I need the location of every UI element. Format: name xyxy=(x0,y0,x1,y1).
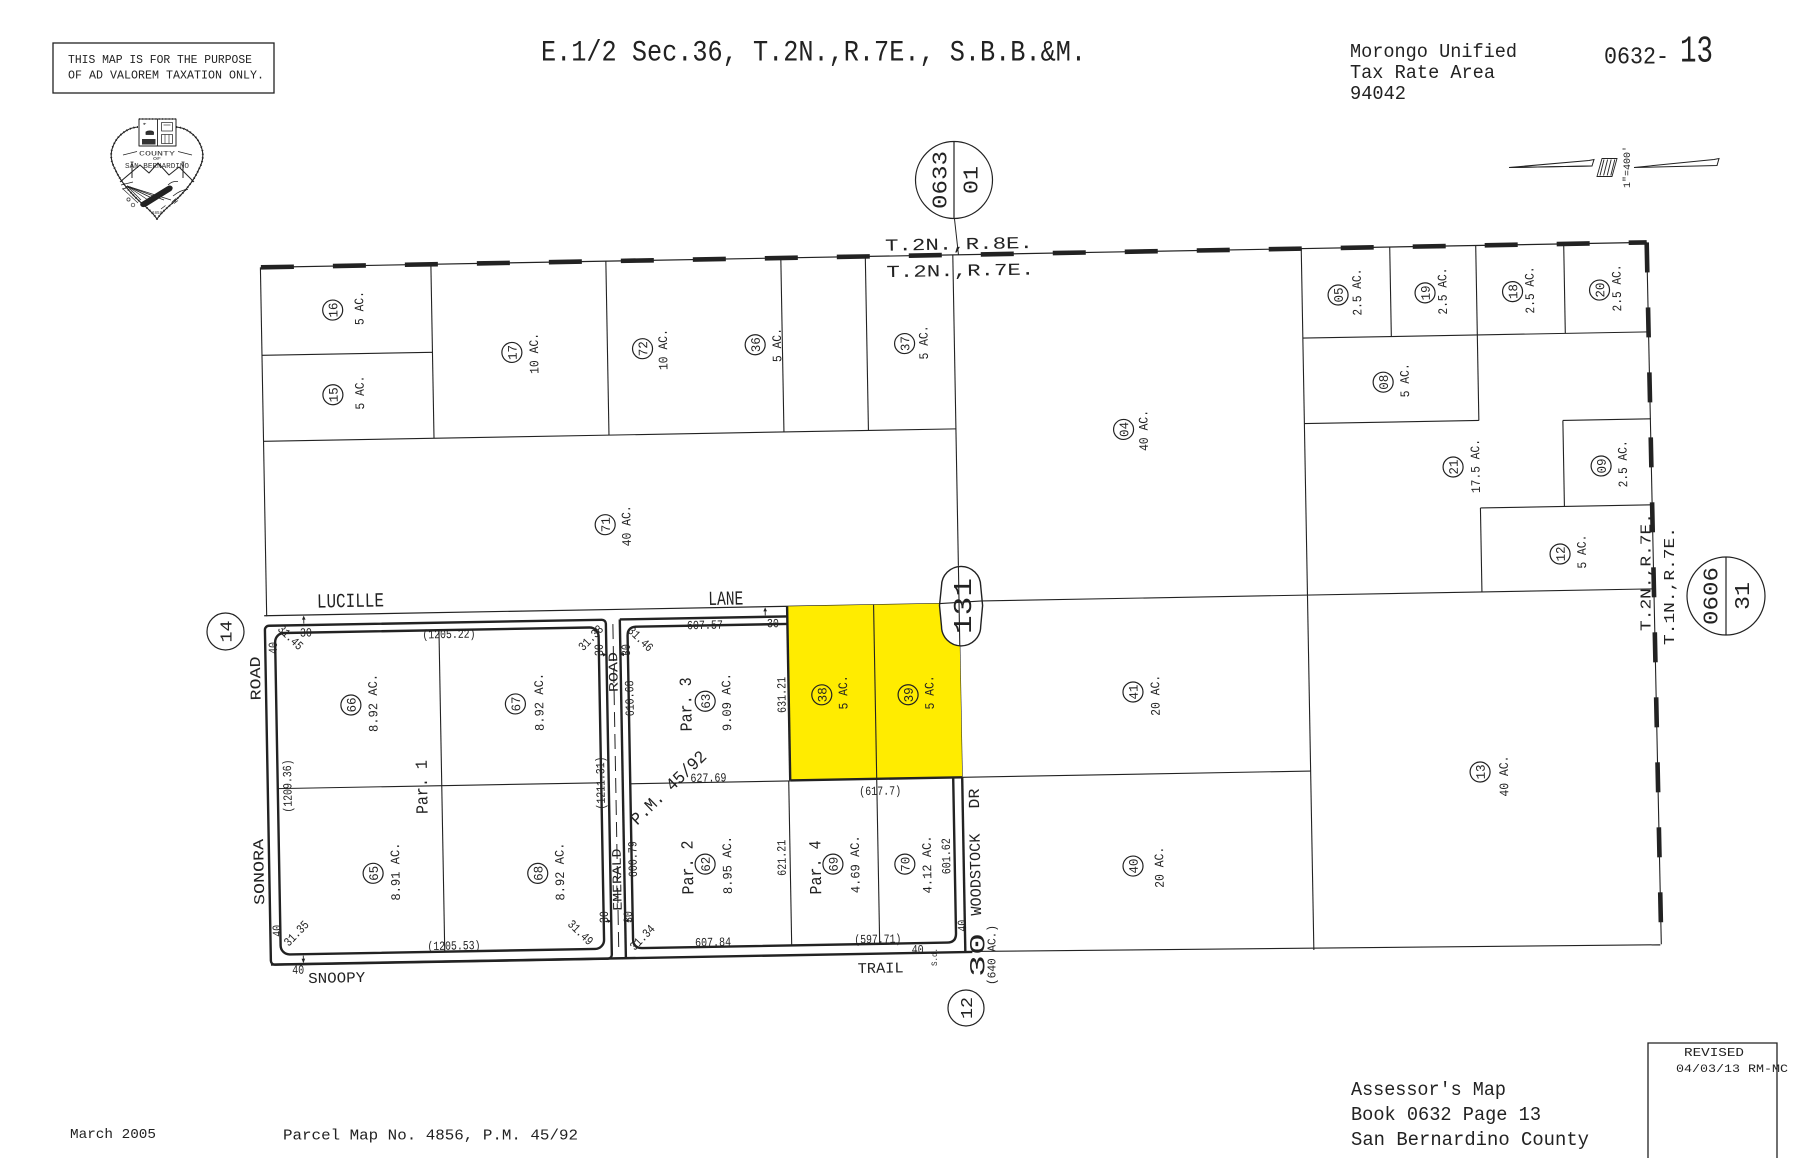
svg-text:30: 30 xyxy=(767,617,779,631)
svg-text:17: 17 xyxy=(505,345,520,360)
svg-text:30: 30 xyxy=(620,644,634,656)
svg-text:(640 AC.): (640 AC.) xyxy=(987,925,1000,985)
svg-text:2.5 AC.: 2.5 AC. xyxy=(1522,266,1538,313)
svg-text:21: 21 xyxy=(1447,459,1462,474)
svg-text:(1211.31): (1211.31) xyxy=(594,756,609,809)
svg-text:LANE: LANE xyxy=(708,588,743,612)
svg-text:40: 40 xyxy=(1127,858,1142,873)
svg-text:S.d.: S.d. xyxy=(930,948,940,966)
svg-text:(1205.53): (1205.53) xyxy=(427,939,480,954)
svg-text:20 AC.: 20 AC. xyxy=(1152,847,1168,888)
svg-text:(1205.22): (1205.22) xyxy=(422,628,475,643)
svg-text:610.68: 610.68 xyxy=(623,680,638,716)
svg-text:15: 15 xyxy=(326,387,341,402)
svg-text:San Bernardino County: San Bernardino County xyxy=(1351,1129,1589,1151)
svg-text:601.62: 601.62 xyxy=(940,838,955,874)
svg-text:T.1N.,R.7E.: T.1N.,R.7E. xyxy=(1662,527,1679,645)
svg-text:13: 13 xyxy=(1680,31,1713,74)
svg-text:607.57: 607.57 xyxy=(687,619,723,634)
svg-text:04: 04 xyxy=(1117,422,1132,437)
svg-text:12: 12 xyxy=(1554,546,1569,561)
svg-text:63: 63 xyxy=(699,694,714,709)
svg-text:0632-: 0632- xyxy=(1604,44,1669,71)
svg-text:600.79: 600.79 xyxy=(626,841,641,877)
svg-text:31: 31 xyxy=(1733,582,1756,610)
svg-text:ROAD: ROAD xyxy=(606,652,622,693)
svg-text:12: 12 xyxy=(959,997,978,1019)
svg-text:40: 40 xyxy=(912,943,924,957)
svg-text:March 2005: March 2005 xyxy=(70,1127,156,1143)
svg-text:13: 13 xyxy=(1474,764,1489,779)
svg-text:01: 01 xyxy=(962,166,985,194)
svg-text:T.2N.,R.7E.: T.2N.,R.7E. xyxy=(886,262,1034,284)
svg-text:5 AC.: 5 AC. xyxy=(352,291,368,325)
svg-text:5 AC.: 5 AC. xyxy=(922,675,938,709)
svg-text:8.95 AC.: 8.95 AC. xyxy=(720,836,736,894)
svg-text:2.5 AC.: 2.5 AC. xyxy=(1350,268,1366,315)
svg-text:18: 18 xyxy=(1506,284,1521,299)
svg-text:5 AC.: 5 AC. xyxy=(770,328,786,362)
svg-text:30: 30 xyxy=(593,644,607,656)
svg-text:9.09 AC.: 9.09 AC. xyxy=(719,673,735,731)
svg-text:8.92 AC.: 8.92 AC. xyxy=(366,674,382,732)
svg-text:Book 0632 Page 13: Book 0632 Page 13 xyxy=(1351,1104,1541,1126)
svg-text:4.12 AC.: 4.12 AC. xyxy=(920,835,936,893)
svg-text:8.91 AC.: 8.91 AC. xyxy=(388,842,404,900)
svg-text:30: 30 xyxy=(598,911,612,923)
svg-text:39: 39 xyxy=(902,687,917,702)
svg-text:94042: 94042 xyxy=(1350,83,1406,105)
svg-text:LUCILLE: LUCILLE xyxy=(317,590,384,614)
svg-text:68: 68 xyxy=(531,866,546,881)
svg-text:EMERALD: EMERALD xyxy=(610,848,626,910)
svg-text:65: 65 xyxy=(367,866,382,881)
svg-text:38: 38 xyxy=(815,687,830,702)
svg-text:20 AC.: 20 AC. xyxy=(1148,675,1164,716)
svg-text:WOODSTOCK: WOODSTOCK xyxy=(967,833,986,916)
svg-text:REVISED: REVISED xyxy=(1684,1047,1744,1060)
svg-text:8.92 AC.: 8.92 AC. xyxy=(552,842,568,900)
svg-text:OF AD VALOREM TAXATION ONLY.: OF AD VALOREM TAXATION ONLY. xyxy=(68,69,264,83)
svg-text:627.69: 627.69 xyxy=(690,771,726,786)
svg-text:70: 70 xyxy=(898,856,913,871)
svg-text:OF: OF xyxy=(153,156,161,162)
svg-text:5 AC.: 5 AC. xyxy=(1398,363,1414,397)
svg-text:Assessor's Map: Assessor's Map xyxy=(1351,1079,1506,1101)
svg-text:0606: 0606 xyxy=(1702,567,1725,625)
svg-text:631.21: 631.21 xyxy=(775,677,790,713)
svg-text:40: 40 xyxy=(271,925,285,937)
svg-text:10 AC.: 10 AC. xyxy=(527,333,543,374)
svg-text:Morongo Unified: Morongo Unified xyxy=(1350,41,1517,63)
svg-text:Par. 1: Par. 1 xyxy=(414,760,434,814)
svg-text:20: 20 xyxy=(1593,282,1608,297)
svg-text:30: 30 xyxy=(622,911,636,923)
svg-text:Par. 2: Par. 2 xyxy=(679,840,699,894)
svg-text:Parcel Map No. 4856, P.M. 45/9: Parcel Map No. 4856, P.M. 45/92 xyxy=(283,1127,578,1144)
svg-text:5 AC.: 5 AC. xyxy=(836,675,852,709)
svg-text:41: 41 xyxy=(1127,684,1142,699)
svg-text:T.2N.,R.8E.: T.2N.,R.8E. xyxy=(885,235,1033,257)
svg-text:5 AC.: 5 AC. xyxy=(1575,534,1591,568)
svg-text:71: 71 xyxy=(599,517,614,532)
svg-text:Tax Rate Area: Tax Rate Area xyxy=(1350,62,1495,84)
svg-text:40: 40 xyxy=(292,964,304,978)
svg-text:40 AC.: 40 AC. xyxy=(1497,755,1513,796)
svg-text:4.69 AC.: 4.69 AC. xyxy=(848,835,864,893)
svg-text:SNOOPY: SNOOPY xyxy=(308,970,365,988)
svg-text:37: 37 xyxy=(898,336,913,351)
svg-text:THIS MAP IS FOR THE PURPOSE: THIS MAP IS FOR THE PURPOSE xyxy=(68,53,252,67)
svg-text:5 AC.: 5 AC. xyxy=(916,325,932,359)
svg-text:2.5 AC.: 2.5 AC. xyxy=(1435,267,1451,314)
svg-text:40 AC.: 40 AC. xyxy=(1136,410,1152,451)
svg-text:10 AC.: 10 AC. xyxy=(656,329,672,370)
svg-text:1853: 1853 xyxy=(152,212,163,216)
svg-text:66: 66 xyxy=(344,697,359,712)
svg-text:2.5 AC.: 2.5 AC. xyxy=(1615,440,1631,487)
svg-text:5 AC.: 5 AC. xyxy=(353,375,369,409)
svg-text:131: 131 xyxy=(949,578,979,634)
svg-text:36: 36 xyxy=(749,337,764,352)
svg-text:0633: 0633 xyxy=(931,151,954,209)
svg-text:SONORA: SONORA xyxy=(251,839,269,905)
svg-text:40: 40 xyxy=(956,919,970,931)
svg-text:16: 16 xyxy=(326,302,341,317)
svg-text:40: 40 xyxy=(267,642,281,654)
svg-text:19: 19 xyxy=(1419,285,1434,300)
svg-text:607.84: 607.84 xyxy=(695,936,731,951)
svg-text:67: 67 xyxy=(509,696,524,711)
svg-text:72: 72 xyxy=(636,341,651,356)
svg-text:ROAD: ROAD xyxy=(248,656,266,700)
svg-text:E.1/2 Sec.36, T.2N.,R.7E., S.B: E.1/2 Sec.36, T.2N.,R.7E., S.B.B.&M. xyxy=(541,36,1086,70)
svg-text:2.5 AC.: 2.5 AC. xyxy=(1609,264,1625,311)
svg-text:(597.71): (597.71) xyxy=(854,933,901,948)
svg-text:09: 09 xyxy=(1595,458,1610,473)
svg-text:Par. 3: Par. 3 xyxy=(678,677,698,731)
svg-text:04/03/13 RM-MC: 04/03/13 RM-MC xyxy=(1676,1064,1788,1076)
svg-text:DR: DR xyxy=(966,788,984,808)
svg-text:1"=400': 1"=400' xyxy=(1622,146,1634,188)
svg-text:(617.7): (617.7) xyxy=(859,784,901,799)
svg-text:40 AC.: 40 AC. xyxy=(619,505,635,546)
svg-text:08: 08 xyxy=(1377,375,1392,390)
svg-text:14: 14 xyxy=(219,621,238,643)
svg-text:(1209.36): (1209.36) xyxy=(281,759,296,812)
svg-text:8.92 AC.: 8.92 AC. xyxy=(532,673,548,731)
svg-text:62: 62 xyxy=(699,856,714,871)
svg-text:621.21: 621.21 xyxy=(775,840,790,876)
svg-text:69: 69 xyxy=(827,856,842,871)
svg-text:TRAIL: TRAIL xyxy=(857,960,903,978)
svg-text:17.5 AC.: 17.5 AC. xyxy=(1468,439,1484,493)
svg-text:05: 05 xyxy=(1332,287,1347,302)
svg-text:Par. 4: Par. 4 xyxy=(807,840,827,894)
